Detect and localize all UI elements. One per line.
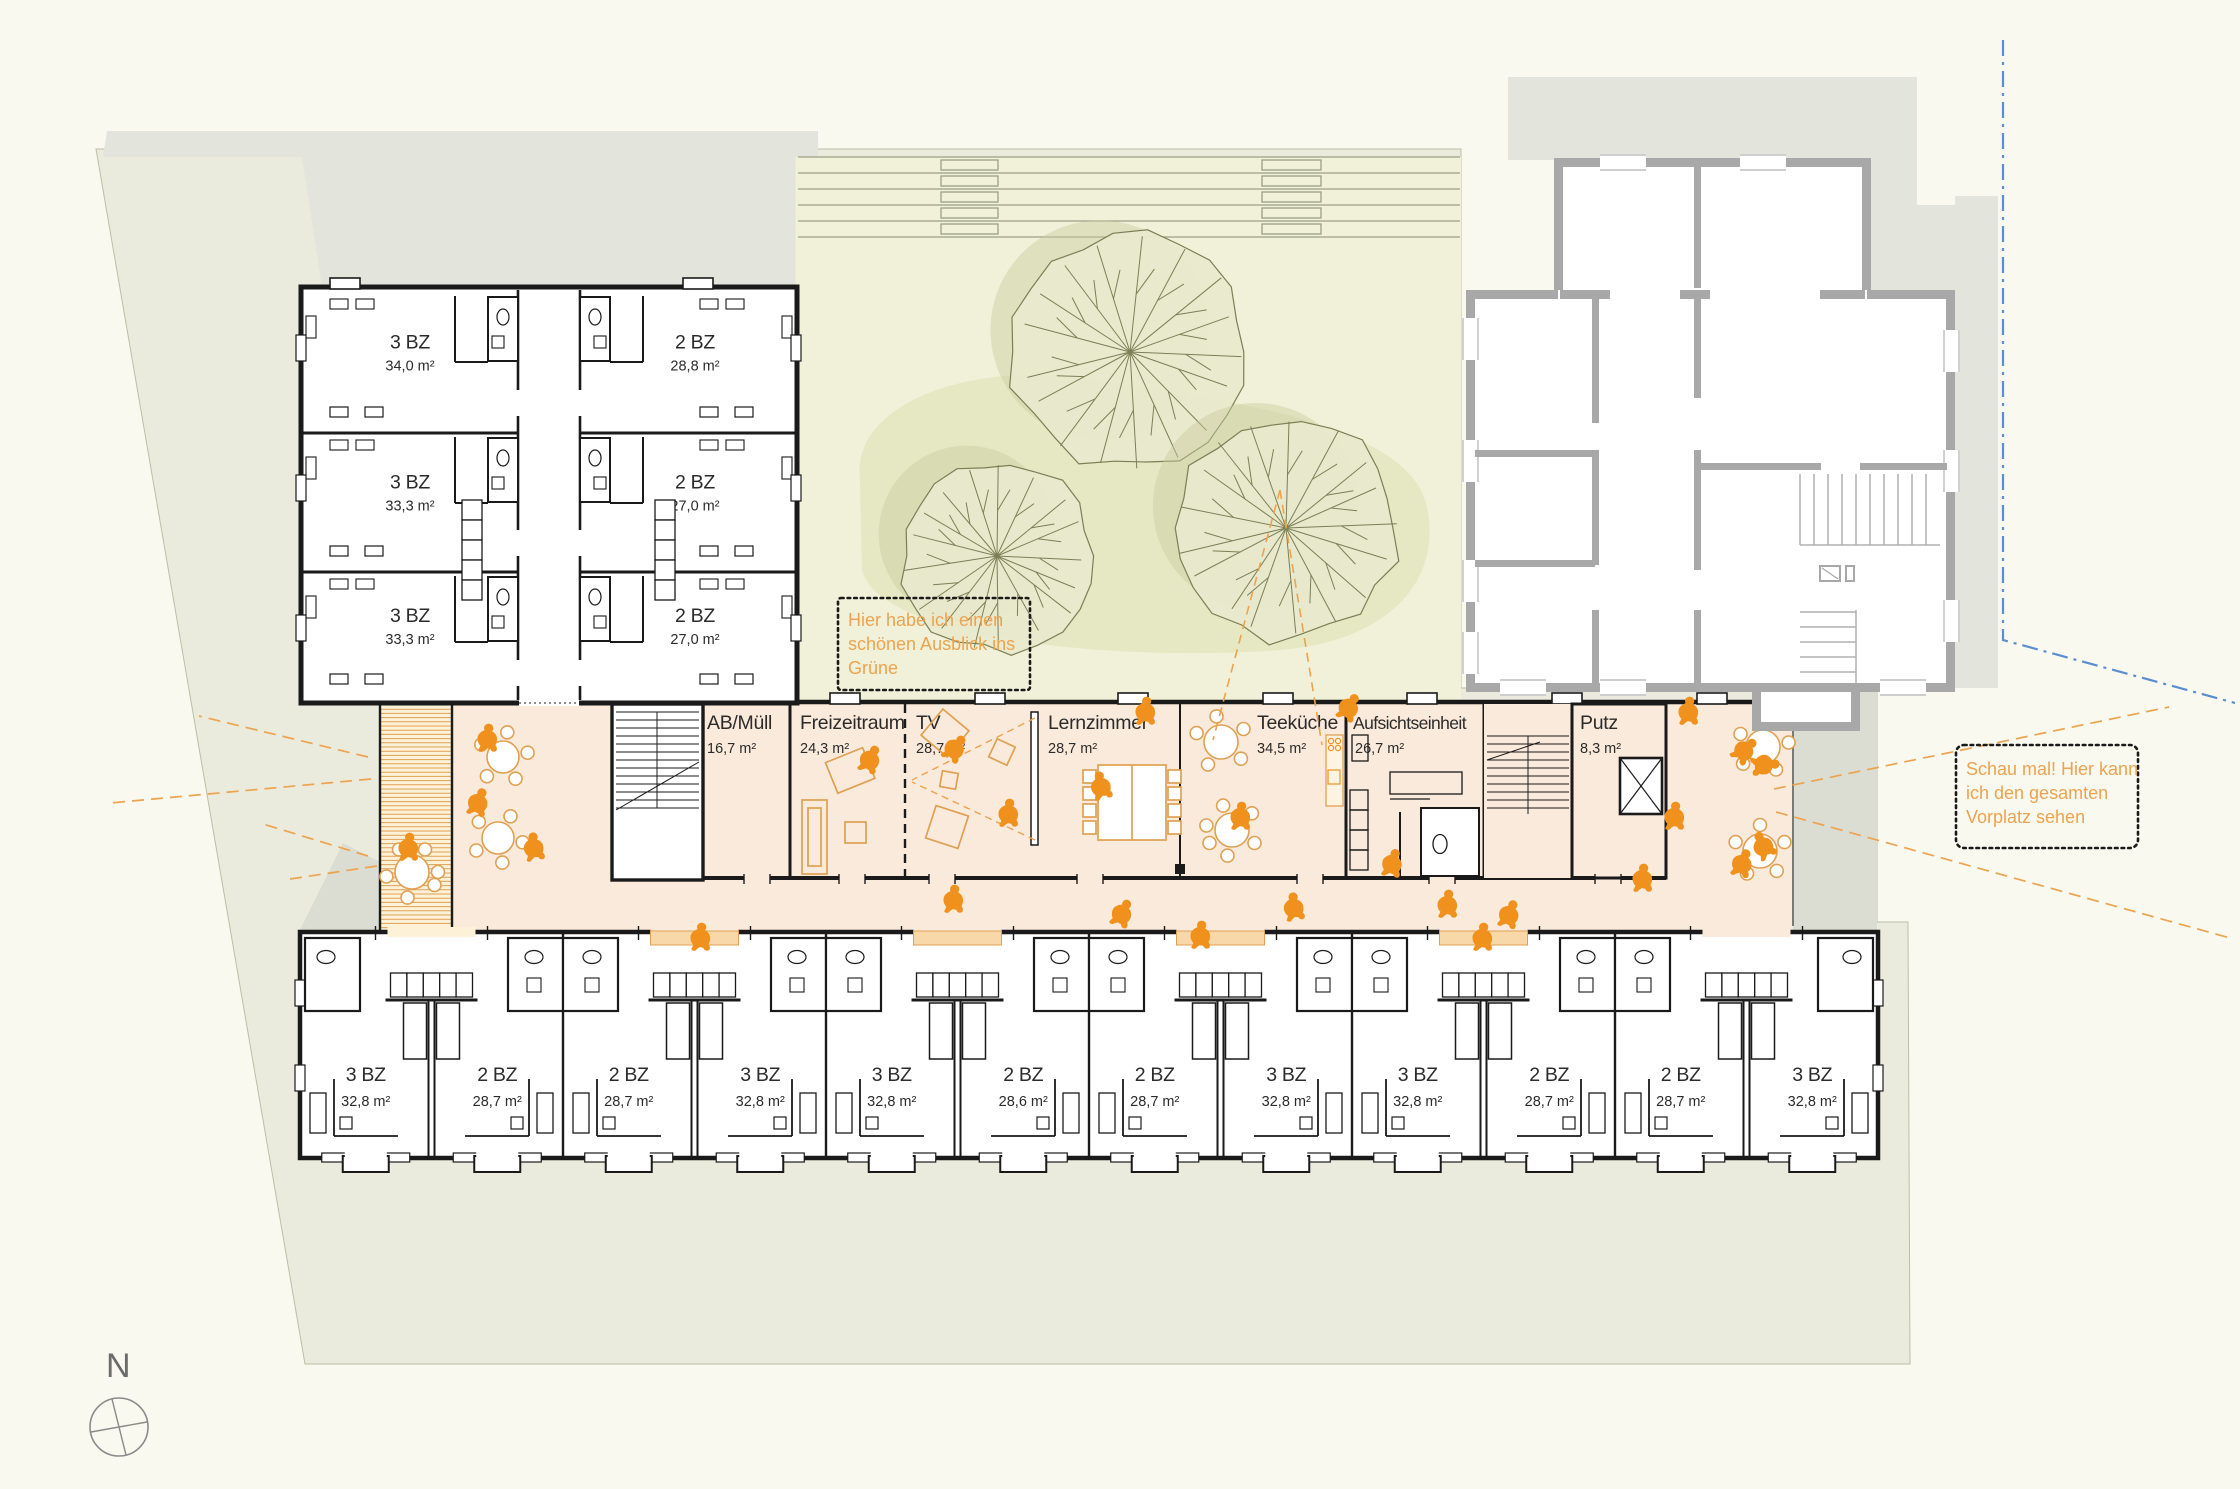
svg-text:ich den gesamten: ich den gesamten bbox=[1966, 783, 2108, 803]
svg-text:34,0 m²: 34,0 m² bbox=[385, 359, 434, 375]
svg-text:3 BZ: 3 BZ bbox=[872, 1064, 912, 1086]
svg-text:3 BZ: 3 BZ bbox=[1792, 1064, 1832, 1086]
svg-text:28,7 m²: 28,7 m² bbox=[1048, 741, 1097, 757]
svg-text:3 BZ: 3 BZ bbox=[390, 332, 430, 354]
svg-text:2 BZ: 2 BZ bbox=[1003, 1064, 1043, 1086]
svg-text:28,7 m²: 28,7 m² bbox=[1525, 1094, 1574, 1110]
svg-text:32,8 m²: 32,8 m² bbox=[1262, 1094, 1311, 1110]
svg-text:Teeküche: Teeküche bbox=[1257, 712, 1338, 734]
svg-text:Vorplatz sehen: Vorplatz sehen bbox=[1966, 807, 2085, 827]
svg-text:2 BZ: 2 BZ bbox=[1529, 1064, 1569, 1086]
svg-text:3 BZ: 3 BZ bbox=[346, 1064, 386, 1086]
svg-text:3 BZ: 3 BZ bbox=[1398, 1064, 1438, 1086]
svg-text:33,3 m²: 33,3 m² bbox=[385, 632, 434, 648]
svg-text:Hier habe ich einen: Hier habe ich einen bbox=[848, 610, 1003, 630]
svg-text:32,8 m²: 32,8 m² bbox=[341, 1094, 390, 1110]
svg-text:24,3 m²: 24,3 m² bbox=[800, 741, 849, 757]
svg-text:33,3 m²: 33,3 m² bbox=[385, 499, 434, 515]
svg-text:Grüne: Grüne bbox=[848, 658, 898, 678]
svg-text:3 BZ: 3 BZ bbox=[390, 605, 430, 627]
svg-text:2 BZ: 2 BZ bbox=[1661, 1064, 1701, 1086]
svg-text:3 BZ: 3 BZ bbox=[390, 472, 430, 494]
svg-text:28,6 m²: 28,6 m² bbox=[999, 1094, 1048, 1110]
svg-text:3 BZ: 3 BZ bbox=[1266, 1064, 1306, 1086]
svg-text:28,7 m²: 28,7 m² bbox=[1130, 1094, 1179, 1110]
svg-text:2 BZ: 2 BZ bbox=[675, 332, 715, 354]
svg-text:28,7 m²: 28,7 m² bbox=[604, 1094, 653, 1110]
svg-text:2 BZ: 2 BZ bbox=[477, 1064, 517, 1086]
svg-text:32,8 m²: 32,8 m² bbox=[1393, 1094, 1442, 1110]
svg-text:N: N bbox=[106, 1347, 131, 1385]
svg-text:16,7 m²: 16,7 m² bbox=[707, 741, 756, 757]
svg-text:AB/Müll: AB/Müll bbox=[707, 712, 772, 734]
svg-text:2 BZ: 2 BZ bbox=[1135, 1064, 1175, 1086]
svg-text:32,8 m²: 32,8 m² bbox=[867, 1094, 916, 1110]
svg-text:32,8 m²: 32,8 m² bbox=[736, 1094, 785, 1110]
svg-text:32,8 m²: 32,8 m² bbox=[1788, 1094, 1837, 1110]
svg-text:Freizeitraum: Freizeitraum bbox=[800, 712, 905, 734]
svg-text:27,0 m²: 27,0 m² bbox=[670, 632, 719, 648]
svg-text:schönen Ausblick ins: schönen Ausblick ins bbox=[848, 634, 1015, 654]
svg-text:Aufsichtseinheit: Aufsichtseinheit bbox=[1353, 713, 1467, 733]
svg-text:Lernzimmer: Lernzimmer bbox=[1048, 712, 1149, 734]
svg-text:2 BZ: 2 BZ bbox=[609, 1064, 649, 1086]
svg-text:2 BZ: 2 BZ bbox=[675, 605, 715, 627]
svg-text:2 BZ: 2 BZ bbox=[675, 472, 715, 494]
svg-text:28,7 m²: 28,7 m² bbox=[1656, 1094, 1705, 1110]
svg-text:Putz: Putz bbox=[1580, 712, 1618, 734]
svg-text:26,7 m²: 26,7 m² bbox=[1355, 741, 1404, 757]
svg-text:8,3 m²: 8,3 m² bbox=[1580, 741, 1621, 757]
svg-text:Schau mal! Hier kann: Schau mal! Hier kann bbox=[1966, 759, 2138, 779]
svg-text:28,7 m²: 28,7 m² bbox=[473, 1094, 522, 1110]
svg-text:28,8 m²: 28,8 m² bbox=[670, 359, 719, 375]
svg-text:3 BZ: 3 BZ bbox=[740, 1064, 780, 1086]
svg-text:27,0 m²: 27,0 m² bbox=[670, 499, 719, 515]
svg-text:34,5 m²: 34,5 m² bbox=[1257, 741, 1306, 757]
